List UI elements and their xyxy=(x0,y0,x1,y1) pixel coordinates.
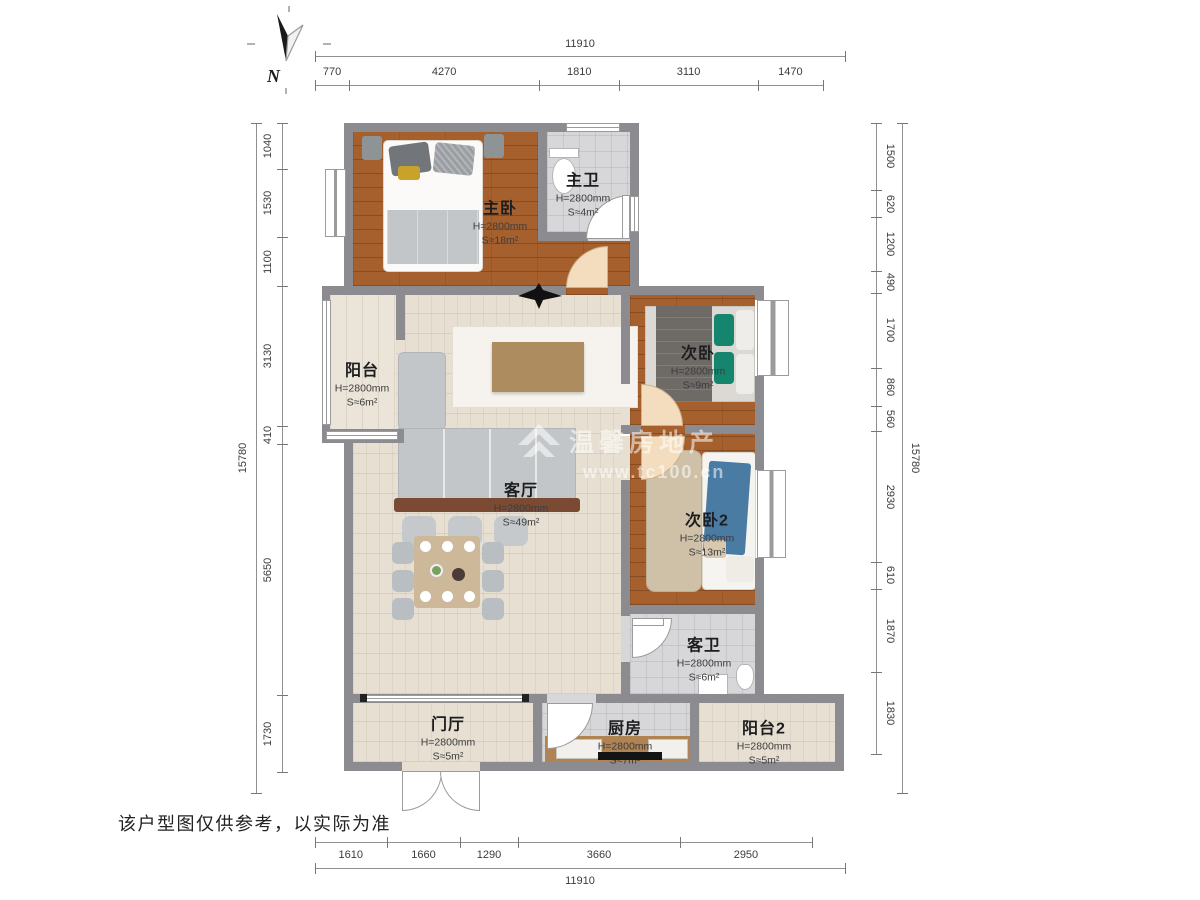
room-name: 阳台 xyxy=(335,363,390,381)
dim-left-segment-label: 410 xyxy=(262,426,274,444)
dim-right-segment-label: 1200 xyxy=(884,232,896,256)
dim-left-segment-label: 1530 xyxy=(262,191,274,215)
dim-right-segment-label: 490 xyxy=(884,272,896,290)
room-label-balcony: 阳台 H=2800mm S≈6m² xyxy=(335,363,390,410)
dim-top-tick xyxy=(619,80,620,91)
dim-left-total-tick xyxy=(251,793,262,794)
dim-left-segment-label: 3130 xyxy=(262,344,274,368)
dim-right-tick xyxy=(871,562,882,563)
dim-left-tick xyxy=(277,695,288,696)
dim-top-segment-label: 770 xyxy=(323,66,341,78)
dim-bottom-segment-label: 3660 xyxy=(587,849,611,861)
dim-bottom-segment-label: 1610 xyxy=(339,849,363,861)
dim-top-total-tick xyxy=(315,51,316,62)
room-height: H=2800mm xyxy=(494,503,549,515)
room-name: 厨房 xyxy=(598,721,653,739)
dim-bottom-tick xyxy=(812,837,813,848)
room-name: 门厅 xyxy=(421,717,476,735)
ceiling-fan-icon xyxy=(518,283,562,309)
dim-right-tick xyxy=(871,123,882,124)
dim-top-segment-label: 1810 xyxy=(567,66,591,78)
dim-right-tick xyxy=(871,589,882,590)
dim-bottom-tick xyxy=(460,837,461,848)
dim-bottom-total-tick xyxy=(845,863,846,874)
dim-right-segment-label: 620 xyxy=(884,194,896,212)
dim-left-line xyxy=(282,123,283,772)
dim-left-tick xyxy=(277,123,288,124)
dim-left-total-label: 15780 xyxy=(237,443,249,474)
room-area: S≈6m² xyxy=(677,672,732,684)
floorplan-canvas: 主卧 H=2800mm S≈18m² 主卫 H=2800mm S≈4m² 次卧 … xyxy=(0,0,1200,900)
dim-right-tick xyxy=(871,271,882,272)
dim-top-total-label: 11910 xyxy=(565,38,595,50)
dim-right-segment-label: 560 xyxy=(884,410,896,428)
dim-right-total-tick xyxy=(897,123,908,124)
dim-top-tick xyxy=(823,80,824,91)
room-name: 次卧 xyxy=(671,346,726,364)
room-label-kitchen: 厨房 H=2800mm S≈7m² xyxy=(598,721,653,768)
dim-top-total-tick xyxy=(845,51,846,62)
room-label-foyer: 门厅 H=2800mm S≈5m² xyxy=(421,717,476,764)
room-height: H=2800mm xyxy=(556,193,611,205)
dim-right-segment-label: 610 xyxy=(884,566,896,584)
dim-right-tick xyxy=(871,406,882,407)
room-label-bedroom3: 次卧2 H=2800mm S≈13m² xyxy=(680,513,735,560)
dim-left-tick xyxy=(277,237,288,238)
dim-top-segment-label: 3110 xyxy=(677,66,701,78)
dim-bottom-line xyxy=(315,842,812,843)
room-height: H=2800mm xyxy=(677,658,732,670)
room-height: H=2800mm xyxy=(421,737,476,749)
dim-top-tick xyxy=(539,80,540,91)
dim-right-segment-label: 1700 xyxy=(884,318,896,342)
room-height: H=2800mm xyxy=(335,383,390,395)
dim-left-tick xyxy=(277,286,288,287)
dim-bottom-segment-label: 2950 xyxy=(734,849,758,861)
room-label-guest-bath: 客卫 H=2800mm S≈6m² xyxy=(677,638,732,685)
dim-right-tick xyxy=(871,672,882,673)
room-height: H=2800mm xyxy=(671,366,726,378)
dim-right-tick xyxy=(871,217,882,218)
dim-left-tick xyxy=(277,772,288,773)
dim-bottom-tick xyxy=(387,837,388,848)
dim-right-tick xyxy=(871,754,882,755)
room-area: S≈13m² xyxy=(680,547,735,559)
dim-top-total-line xyxy=(315,56,845,57)
room-name: 阳台2 xyxy=(737,721,792,739)
dim-right-tick xyxy=(871,368,882,369)
dim-top-tick xyxy=(315,80,316,91)
dim-right-tick xyxy=(871,431,882,432)
room-label-living-room: 客厅 H=2800mm S≈49m² xyxy=(494,483,549,530)
dim-left-segment-label: 1100 xyxy=(262,250,274,274)
room-area: S≈6m² xyxy=(335,397,390,409)
room-area: S≈49m² xyxy=(494,517,549,529)
dim-left-tick xyxy=(277,426,288,427)
kitchen-cooktop xyxy=(598,752,662,760)
dim-bottom-segment-label: 1660 xyxy=(411,849,435,861)
room-name: 客卫 xyxy=(677,638,732,656)
dim-bottom-tick xyxy=(680,837,681,848)
dim-right-total-label: 15780 xyxy=(909,443,921,474)
disclaimer-text: 该户型图仅供参考，以实际为准 xyxy=(118,810,391,836)
dim-left-total-line xyxy=(256,123,257,793)
dim-left-tick xyxy=(277,444,288,445)
room-height: H=2800mm xyxy=(473,221,528,233)
dim-top-segment-label: 4270 xyxy=(432,66,456,78)
dim-left-tick xyxy=(277,169,288,170)
dim-right-tick xyxy=(871,293,882,294)
dim-left-total-tick xyxy=(251,123,262,124)
dim-right-total-tick xyxy=(897,793,908,794)
dim-bottom-tick xyxy=(315,837,316,848)
dim-bottom-total-tick xyxy=(315,863,316,874)
dim-right-segment-label: 860 xyxy=(884,378,896,396)
dim-left-segment-label: 5650 xyxy=(262,557,274,581)
room-label-bedroom2: 次卧 H=2800mm S≈9m² xyxy=(671,346,726,393)
dim-right-segment-label: 2930 xyxy=(884,484,896,508)
room-area: S≈18m² xyxy=(473,235,528,247)
room-height: H=2800mm xyxy=(737,741,792,753)
room-area: S≈5m² xyxy=(737,755,792,767)
dim-right-total-line xyxy=(902,123,903,793)
dim-right-segment-label: 1830 xyxy=(884,701,896,725)
dim-bottom-total-line xyxy=(315,868,845,869)
dim-left-segment-label: 1040 xyxy=(262,134,274,158)
room-area: S≈4m² xyxy=(556,207,611,219)
dim-right-tick xyxy=(871,190,882,191)
dim-right-segment-label: 1870 xyxy=(884,618,896,642)
room-name: 主卫 xyxy=(556,173,611,191)
room-label-master-bedroom: 主卧 H=2800mm S≈18m² xyxy=(473,201,528,248)
room-name: 次卧2 xyxy=(680,513,735,531)
room-label-master-bath: 主卫 H=2800mm S≈4m² xyxy=(556,173,611,220)
dim-top-segment-label: 1470 xyxy=(778,66,802,78)
dim-bottom-tick xyxy=(518,837,519,848)
dim-left-segment-label: 1730 xyxy=(262,722,274,746)
dim-top-tick xyxy=(758,80,759,91)
dim-top-tick xyxy=(349,80,350,91)
dim-right-segment-label: 1500 xyxy=(884,144,896,168)
dim-bottom-segment-label: 1290 xyxy=(477,849,501,861)
dim-top-line xyxy=(315,85,823,86)
room-label-balcony2: 阳台2 H=2800mm S≈5m² xyxy=(737,721,792,768)
room-area: S≈9m² xyxy=(671,380,726,392)
room-height: H=2800mm xyxy=(680,533,735,545)
room-area: S≈5m² xyxy=(421,751,476,763)
dim-bottom-total-label: 11910 xyxy=(565,875,595,887)
room-name: 客厅 xyxy=(494,483,549,501)
room-name: 主卧 xyxy=(473,201,528,219)
